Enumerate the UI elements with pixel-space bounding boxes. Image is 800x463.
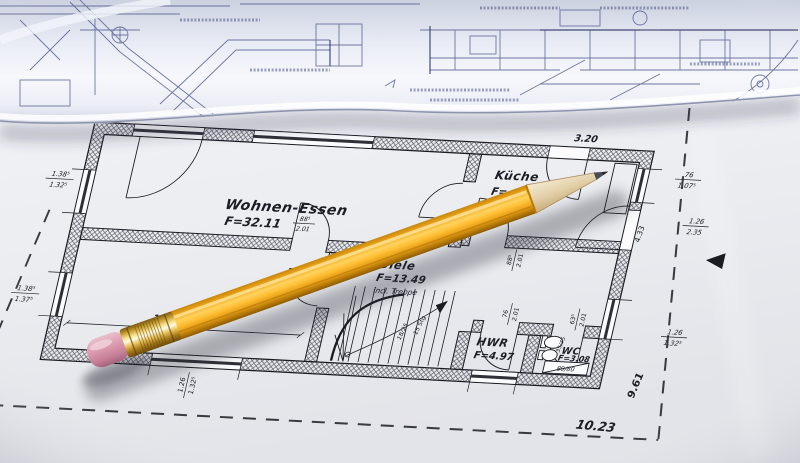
photo-vignette (0, 0, 800, 463)
photo-scene: Wohnen-Essen F=32.11 Küche F= Diele F=13… (0, 0, 800, 463)
scene-canvas: Wohnen-Essen F=32.11 Küche F= Diele F=13… (0, 0, 800, 463)
